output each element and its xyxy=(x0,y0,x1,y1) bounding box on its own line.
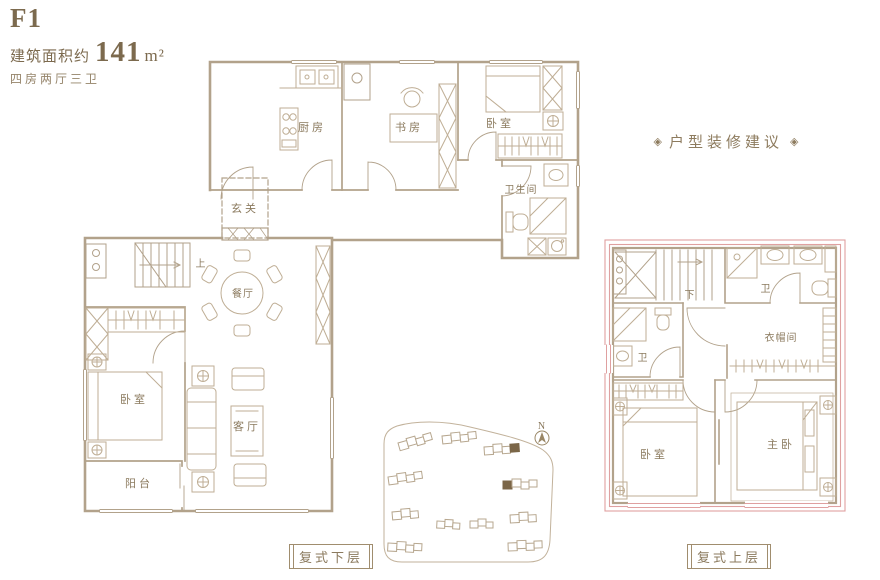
upper-plan-caption-text: 复式上层 xyxy=(697,547,761,566)
stair-direction-label: 下 xyxy=(685,290,696,301)
study-fixtures xyxy=(390,84,456,188)
bath-top-door-arc xyxy=(770,273,800,303)
floorplan-page: F1 建筑面积约 141 m² 四房两厅三卫 ◈ 户型装修建议 ◈ xyxy=(0,0,880,580)
bookshelf-icon xyxy=(316,246,330,344)
toilet-icon xyxy=(506,212,513,232)
bedroom-closet xyxy=(613,383,683,400)
hall-door-arc xyxy=(687,308,725,346)
lower-plan-caption-text: 复式下层 xyxy=(299,547,363,566)
wardrobe-icon xyxy=(86,308,108,360)
showerhead-icon xyxy=(734,254,740,260)
chair-icon xyxy=(404,91,420,107)
balcony-slider xyxy=(180,464,184,510)
bathroom-fixtures xyxy=(506,164,568,255)
stairs-upper xyxy=(613,250,712,300)
upper-windows xyxy=(604,345,828,510)
site-plan: N xyxy=(384,421,553,562)
site-building-highlight xyxy=(484,443,520,455)
master-door-arc xyxy=(725,380,757,412)
entry-door-arc xyxy=(221,167,253,199)
washbasin-icon xyxy=(613,346,632,366)
lower-floor-plan: 厨房 书房 卧室 卫生间 玄关 上 餐厅 卧室 客厅 阳台 xyxy=(82,59,581,514)
upper-plan-caption: 复式上层 xyxy=(687,544,771,569)
room-label: 卫生间 xyxy=(505,183,538,196)
armchair-icon xyxy=(232,368,264,390)
room-label: 书房 xyxy=(395,121,423,134)
room-label: 餐厅 xyxy=(232,287,254,300)
stair-direction-label: 上 xyxy=(196,258,207,270)
lower-plan-caption: 复式下层 xyxy=(289,544,373,569)
study-door-arc xyxy=(368,162,396,190)
compass-north-label: N xyxy=(538,421,546,432)
room-label: 卧室 xyxy=(640,447,668,461)
room-label: 主卧 xyxy=(767,438,795,451)
floorplan-drawing: 厨房 书房 卧室 卫生间 玄关 上 餐厅 卧室 客厅 阳台 xyxy=(0,0,880,580)
site-building-highlight xyxy=(503,479,537,489)
upper-floor-plan: 下 卫 卫 衣帽间 卧室 主卧 xyxy=(604,240,845,511)
bedroom-left-fixtures xyxy=(86,308,185,458)
sofa-icon xyxy=(187,388,216,470)
bedroom-door-arc xyxy=(683,380,715,412)
washbasin-icon xyxy=(544,164,568,186)
room-label: 衣帽间 xyxy=(765,331,798,344)
bath-left-door-arc xyxy=(650,347,680,377)
room-label: 厨房 xyxy=(298,121,326,134)
cabinet-icon xyxy=(86,244,106,278)
nightstand-icon xyxy=(543,66,562,110)
bedroom-top-fixtures xyxy=(486,66,563,158)
room-label: 客厅 xyxy=(233,419,261,433)
toilet-icon xyxy=(828,279,836,297)
room-label: 卧室 xyxy=(120,392,148,406)
bed-icon xyxy=(486,66,540,112)
bed-icon xyxy=(88,372,162,440)
kitchen-fixtures xyxy=(280,66,342,150)
room-label: 卫 xyxy=(761,284,772,295)
room-label: 阳台 xyxy=(125,476,153,490)
stairs-lower xyxy=(135,243,190,287)
room-label: 玄关 xyxy=(231,201,259,215)
site-buildings xyxy=(388,430,543,552)
bedroom-left-door-arc xyxy=(153,331,185,363)
room-label: 卫 xyxy=(638,353,649,364)
kitchen-door-arc xyxy=(302,160,332,190)
bath-top-fixtures xyxy=(727,246,836,297)
duct-shaft xyxy=(344,64,370,100)
compass-icon: N xyxy=(535,421,549,445)
bedroom-top-door-arc xyxy=(468,132,496,160)
armchair-icon xyxy=(234,464,266,486)
sink-icon xyxy=(296,66,338,88)
toilet-icon xyxy=(655,308,671,315)
room-label: 卧室 xyxy=(486,116,514,130)
